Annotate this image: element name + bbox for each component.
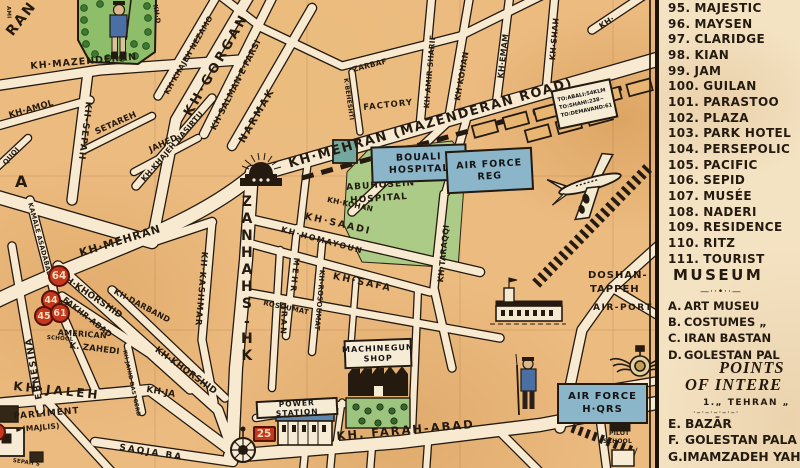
museum-list: A.ART MUSEUB.COSTUMES „C.IRAN BASTAND.GO… (668, 298, 800, 363)
legend-item: B.COSTUMES „ (668, 314, 800, 330)
hotel-list-item: 98.KIAN (668, 48, 800, 64)
road (303, 452, 305, 468)
hotel-number: 97. (668, 32, 690, 48)
hotel-name: PARK HOTEL (703, 126, 791, 142)
parliament-buildings (0, 406, 43, 462)
map-canvas (0, 0, 655, 468)
hotel-number: 101. (668, 95, 699, 111)
hotel-list-item: 96.MAYSEN (668, 17, 800, 33)
hotel-number: 104. (668, 142, 699, 158)
road (48, 402, 112, 468)
hotel-list-item: 108.NADERI (668, 205, 800, 221)
road (128, 346, 142, 412)
hotel-name: NADERI (703, 205, 757, 221)
road (158, 0, 218, 96)
points-title-line2: OF INTERE (685, 375, 782, 395)
hotel-number: 107. (668, 189, 699, 205)
hotel-list-item: 95.MAJESTIC (668, 1, 800, 17)
map-border-line (649, 0, 651, 468)
hotel-name: PACIFIC (703, 158, 758, 174)
hotel-number: 110. (668, 236, 699, 252)
hotel-number: 108. (668, 205, 699, 221)
hotel-name: PLAZA (703, 111, 749, 127)
museum-section-title: MUSEUM (673, 266, 763, 284)
hotel-number: 95. (668, 1, 690, 17)
hotel-list-item: 101.PARASTOO (668, 95, 800, 111)
museum-rule: —··•··— (683, 287, 759, 297)
hotel-name: TOURIST (703, 252, 764, 268)
hotel-name: GUILAN (703, 79, 756, 95)
item-name: IRAN BASTAN (684, 330, 771, 346)
map-area: RANAMIKH·MAZENDERANKH·AMOLSETAREHJAHEDKH… (0, 0, 655, 468)
road (500, 432, 540, 468)
hotel-name: MAJESTIC (694, 1, 761, 17)
hotel-list-item: 100.GUILAN (668, 79, 800, 95)
hotel-list-item: 103.PARK HOTEL (668, 126, 800, 142)
tehran-map-screenshot: RANAMIKH·MAZENDERANKH·AMOLSETAREHJAHEDKH… (0, 0, 800, 468)
item-letter: G. (668, 449, 683, 465)
item-name: GOLESTAN PALA (685, 432, 797, 448)
legend-panel: 95.MAJESTIC96.MAYSEN97.CLARIDGE98.KIAN99… (655, 0, 800, 468)
factory-block (333, 140, 357, 163)
road (84, 116, 152, 150)
hotel-list-item: 111.TOURIST (668, 252, 800, 268)
hotel-list-item: 107.MUSÉE (668, 189, 800, 205)
legend-item: C.IRAN BASTAN (668, 330, 800, 346)
item-name: COSTUMES „ (684, 314, 767, 330)
road (426, 443, 428, 468)
hotel-number: 98. (668, 48, 690, 64)
hotel-list-item: 109.RESIDENCE (668, 220, 800, 236)
item-letter: D. (668, 347, 684, 363)
hotel-name: MUSÉE (703, 189, 752, 205)
hotel-name: RESIDENCE (703, 220, 782, 236)
hotel-number: 106. (668, 173, 699, 189)
hotel-number: 102. (668, 111, 699, 127)
item-name: ART MUSEU (684, 298, 759, 314)
hotel-number: 103. (668, 126, 699, 142)
road (12, 246, 40, 410)
hotel-list-item: 97.CLARIDGE (668, 32, 800, 48)
hotel-number: 111. (668, 252, 699, 268)
points-list: E.BAZĀRF.GOLESTAN PALAG.IMAMZADEH YAH (668, 416, 800, 465)
legend-item: E.BAZĀR (668, 416, 800, 432)
hotel-list-item: 105.PACIFIC (668, 158, 800, 174)
legend-item: A.ART MUSEU (668, 298, 800, 314)
road (95, 442, 233, 462)
park (78, 0, 156, 64)
hotel-name: SEPID (703, 173, 745, 189)
hotel-number: 100. (668, 79, 699, 95)
road (546, 0, 555, 92)
road (272, 250, 280, 388)
hotel-number: 99. (668, 64, 690, 80)
machinegun-shop-factory (346, 354, 410, 428)
item-name: BAZĀR (685, 416, 732, 432)
hotel-list-item: 102.PLAZA (668, 111, 800, 127)
hotel-number: 96. (668, 17, 690, 33)
hotel-name: KIAN (694, 48, 729, 64)
hotel-list: 95.MAJESTIC96.MAYSEN97.CLARIDGE98.KIAN99… (668, 1, 800, 267)
hotel-name: PARASTOO (703, 95, 779, 111)
hotel-number: 105. (668, 158, 699, 174)
item-letter: A. (668, 298, 684, 314)
hotel-name: PERSEPOLIC (703, 142, 790, 158)
hotel-list-item: 106.SEPID (668, 173, 800, 189)
item-letter: E. (668, 416, 685, 432)
item-name: IMAMZADEH YAH (683, 449, 800, 465)
legend-item: G.IMAMZADEH YAH (668, 449, 800, 465)
points-subtitle: 1.„ TEHRAN „ (703, 398, 790, 408)
airplane-icon (542, 150, 629, 226)
road (350, 280, 356, 358)
hotel-name: JAM (694, 64, 721, 80)
airport-terminal (490, 278, 566, 324)
hotel-name: MAYSEN (694, 17, 752, 33)
road (330, 450, 332, 468)
hotel-name: RITZ (703, 236, 735, 252)
hotel-list-item: 110.RITZ (668, 236, 800, 252)
guard-soldier-figure (516, 354, 536, 415)
legend-item: F.GOLESTAN PALA (668, 432, 800, 448)
hotel-number: 109. (668, 220, 699, 236)
hotel-list-item: 99.JAM (668, 64, 800, 80)
item-letter: C. (668, 330, 684, 346)
hotel-list-item: 104.PERSEPOLIC (668, 142, 800, 158)
road (370, 447, 372, 468)
item-letter: F. (668, 432, 685, 448)
item-letter: B. (668, 314, 684, 330)
hotel-name: CLARIDGE (694, 32, 765, 48)
